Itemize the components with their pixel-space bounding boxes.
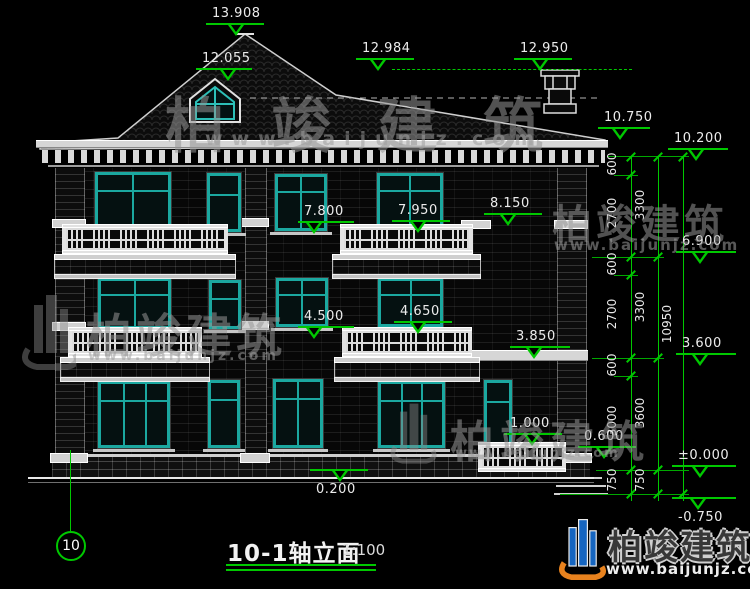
- window-1f-a: [98, 381, 170, 448]
- axis-bubble: 10: [56, 531, 86, 561]
- dim-label-10950: 10950: [660, 302, 674, 346]
- porch-railing: [478, 442, 566, 472]
- window-2f-b: [209, 280, 241, 329]
- elev-value: 10.200: [674, 131, 728, 146]
- brand-url: www.baijunjz.com: [606, 560, 750, 578]
- elev-value: 7.800: [304, 204, 354, 219]
- window-1f-c: [273, 379, 323, 448]
- dim-label-600: 600: [605, 142, 619, 186]
- dim-label-3600: 3600: [633, 391, 647, 435]
- elev-marker-parapet: 10.200: [668, 131, 728, 161]
- brand-logo-color: [556, 518, 606, 582]
- eave-fascia: [36, 140, 608, 148]
- elev-marker-porch-roof: 3.850: [510, 329, 570, 359]
- dim-label-750: 750: [605, 458, 619, 502]
- dim-chain-floor: [658, 157, 659, 501]
- chimney: [541, 70, 579, 113]
- dim-label-2700: 2700: [605, 191, 619, 235]
- elev-marker-ground-step: 0.200: [310, 469, 368, 499]
- dim-label-3300: 3300: [633, 183, 647, 227]
- axis-number: 10: [62, 538, 80, 554]
- elev-marker-ground: ±0.000: [672, 448, 736, 478]
- elev-value: 12.055: [202, 51, 252, 66]
- elev-marker-3f-rail-left: 7.800: [298, 204, 354, 234]
- dim-label-600: 600: [605, 242, 619, 286]
- step-line-2: [556, 485, 606, 487]
- right-pilaster: [557, 168, 587, 455]
- elev-value: 4.500: [304, 309, 354, 324]
- balcony-2f-center: [342, 327, 472, 382]
- drawing-title: 10-1轴立面: [227, 534, 361, 568]
- elev-marker-upper-roof: 12.984: [356, 41, 414, 71]
- left-pilaster-footing: [52, 463, 86, 478]
- elev-value: 8.150: [490, 196, 542, 211]
- cornice-line: [48, 165, 599, 167]
- elev-marker-foundation: -0.750: [672, 497, 736, 527]
- window-2f-a: [98, 278, 171, 329]
- elev-marker-2f-floor: 3.600: [676, 336, 736, 366]
- elev-value: 4.650: [400, 304, 452, 319]
- center-pier-cap-3f: [241, 218, 269, 227]
- left-pilaster: [55, 168, 85, 455]
- elev-value: 12.950: [520, 41, 572, 56]
- center-pier: [245, 168, 267, 455]
- balcony-3f-left: [62, 224, 228, 279]
- dim-label-750: 750: [633, 458, 647, 502]
- window-1f-b: [208, 380, 240, 448]
- elev-value: 6.900: [682, 234, 736, 249]
- dim-label-3300: 3300: [633, 285, 647, 329]
- elev-value: 3.850: [516, 329, 570, 344]
- elevation-drawing-canvas: 13.908 12.055 12.984 12.950 10.750 10.20…: [0, 0, 750, 589]
- center-pier-base-cap: [240, 453, 270, 463]
- left-pilaster-base-cap: [50, 453, 88, 463]
- roof-level-dashed-line: [392, 69, 632, 70]
- window-3f-a: [95, 172, 171, 232]
- elev-marker-ridge: 13.908: [206, 6, 264, 36]
- elev-value: ±0.000: [678, 448, 736, 463]
- elev-marker-bay-coping: 8.150: [484, 196, 542, 226]
- elev-value: 3.600: [682, 336, 736, 351]
- axis-line: [70, 450, 71, 531]
- lattice-railing: [342, 331, 472, 353]
- title-underline-1: [226, 564, 376, 566]
- drawing-scale: 1:100: [342, 541, 385, 559]
- dim-connector: [560, 494, 689, 495]
- dim-label-600: 600: [605, 343, 619, 387]
- elev-marker-dormer: 12.055: [196, 51, 252, 81]
- elev-value: 7.950: [398, 203, 450, 218]
- elev-marker-3f-rail-center: 7.950: [392, 203, 450, 233]
- elev-marker-porch-rail: 1.000: [504, 416, 562, 446]
- lattice-railing: [62, 228, 228, 250]
- elev-value: 10.750: [604, 110, 653, 125]
- elev-marker-chimney: 12.950: [514, 41, 572, 71]
- elev-value: 12.984: [362, 41, 414, 56]
- center-pier-cap-2f: [241, 321, 269, 330]
- dentil-band: [42, 150, 605, 163]
- right-pilaster-cap-3f: [554, 220, 588, 229]
- elev-value: 0.200: [316, 482, 368, 497]
- lattice-railing: [68, 331, 202, 353]
- balcony-2f-left: [68, 327, 202, 382]
- elev-marker-eave: 10.750: [598, 110, 653, 140]
- brand-name: 柏竣建筑: [608, 520, 750, 569]
- elev-value: 13.908: [212, 6, 264, 21]
- lattice-railing: [478, 446, 566, 468]
- elev-value: -0.750: [678, 510, 736, 525]
- window-1f-d: [378, 381, 445, 448]
- dim-label-2700: 2700: [605, 292, 619, 336]
- elev-value: 1.000: [510, 416, 562, 431]
- elev-marker-2f-rail-left: 4.500: [298, 309, 354, 339]
- dim-label-3000: 3000: [605, 399, 619, 443]
- title-underline-2: [226, 569, 376, 571]
- elev-marker-2f-rail-center: 4.650: [394, 304, 452, 334]
- elev-marker-3f-floor: 6.900: [676, 234, 736, 264]
